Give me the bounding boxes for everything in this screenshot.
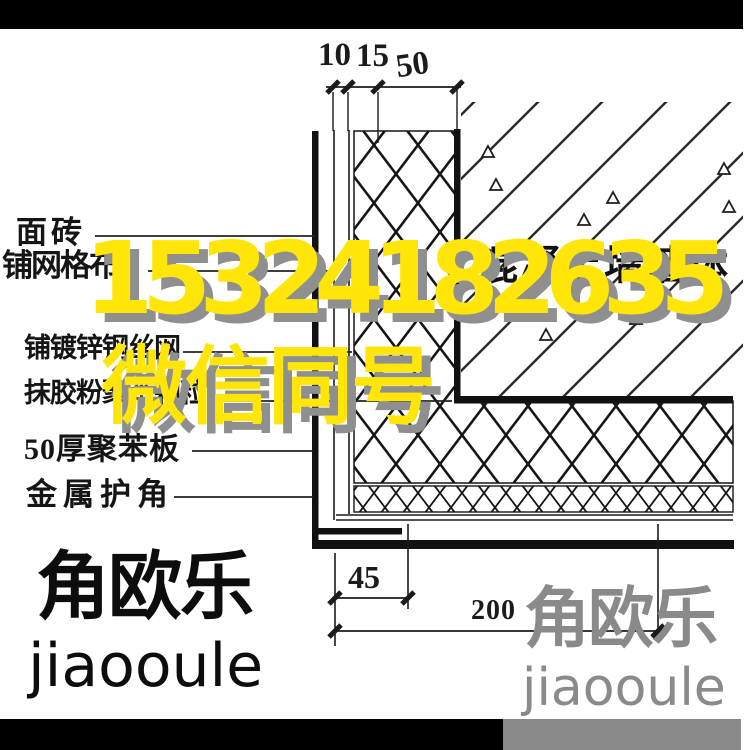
dim-value-15: 15 [356, 40, 389, 73]
watermark-phone-number: 15324182635 [84, 229, 717, 329]
dim-value-10: 10 [318, 39, 351, 72]
watermark-wechat-note: 微信同号 [102, 345, 434, 430]
bottom-black-bar [0, 719, 503, 750]
label-face-tile: 面砖 [16, 217, 86, 248]
label-metal-corner-guard: 金属护角 [26, 479, 174, 510]
logo-black-latin: jiaooule [28, 636, 263, 696]
label-polystyrene-board: 50厚聚苯板 [24, 435, 180, 465]
dim-value-200: 200 [471, 597, 516, 625]
wall-soffit-line [454, 396, 733, 404]
bottom-face-line [312, 540, 734, 549]
logo-gray-chinese: 角欧乐 [524, 586, 716, 652]
bottom-gray-bar [503, 719, 741, 750]
top-black-bar [0, 0, 743, 29]
screenshot-page: 面砖 铺网格布 铺镀锌钢丝网 抹胶粉聚苯颗粒 50厚聚苯板 金属护角 混凝土墙墙… [0, 0, 750, 750]
render-layer-hatch [354, 486, 733, 512]
logo-gray-latin: jiaooule [522, 662, 726, 714]
logo-black-chinese: 角欧乐 [36, 550, 252, 624]
metal-corner-bead [318, 528, 402, 535]
dim-value-45: 45 [348, 561, 380, 593]
dim-value-50: 50 [394, 47, 431, 84]
